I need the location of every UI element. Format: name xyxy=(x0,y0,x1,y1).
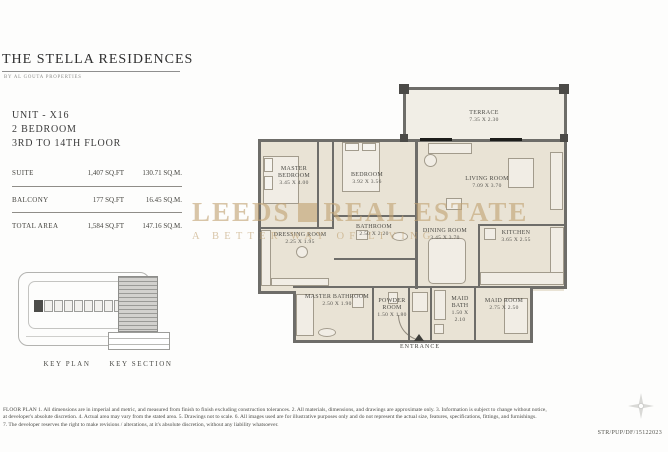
furniture-sink xyxy=(318,328,336,337)
key-plan-label: KEY PLAN xyxy=(26,360,108,368)
sliding-door xyxy=(420,138,452,141)
wall xyxy=(293,291,296,343)
watermark-line1: LEEDS REAL ESTATE xyxy=(192,197,528,228)
furniture-kitchen-counter xyxy=(480,272,564,285)
area-sqm: 147.16 SQ.M. xyxy=(124,222,182,230)
podium-elevation xyxy=(108,332,170,350)
wall xyxy=(258,291,296,294)
furniture-kitchen-counter xyxy=(550,227,564,273)
wall xyxy=(474,288,476,341)
area-sqm: 130.71 SQ.M. xyxy=(124,169,182,177)
unit-strip xyxy=(34,300,123,312)
furniture-armchair xyxy=(424,154,437,167)
furniture-bathtub xyxy=(434,290,446,320)
unit-floors: 3RD TO 14TH FLOOR xyxy=(12,137,121,151)
key-section-label: KEY SECTION xyxy=(98,360,184,368)
unit-info: UNIT - X16 2 BEDROOM 3RD TO 14TH FLOOR xyxy=(12,109,121,151)
furniture-dining-table xyxy=(428,238,466,284)
table-row: SUITE 1,407 SQ.FT 130.71 SQ.M. xyxy=(12,160,182,186)
unit-number: UNIT - X16 xyxy=(12,109,121,123)
room-label-master-bedroom: MASTER BEDROOM3.45 X 4.00 xyxy=(271,166,317,187)
area-sqft: 1,407 SQ.FT xyxy=(74,169,124,177)
furniture-pillow xyxy=(345,143,359,151)
watermark: LEEDS REAL ESTATE A BETTER WAY OF LIVING xyxy=(192,197,528,242)
furniture-sofa xyxy=(550,152,563,210)
room-label-living-room: LIVING ROOM7.09 X 3.70 xyxy=(452,176,522,190)
room-label-bedroom: BEDROOM3.92 X 3.56 xyxy=(338,172,396,186)
wall xyxy=(293,286,532,288)
wall xyxy=(372,288,374,341)
area-sqft: 177 SQ.FT xyxy=(74,196,124,204)
wall xyxy=(564,87,567,141)
wall xyxy=(408,288,410,341)
room-label-maid-bath: MAID BATH1.50 X 2.10 xyxy=(446,296,474,324)
road-line xyxy=(26,336,118,337)
area-row-label: BALCONY xyxy=(12,196,74,204)
document-reference: STR/PUP/DF/15122023 xyxy=(598,430,662,436)
furniture-wardrobe xyxy=(271,278,329,286)
room-label-master-bathroom: MASTER BATHROOM2.50 X 1.90 xyxy=(304,294,370,308)
column-post xyxy=(399,84,409,94)
furniture-pillow xyxy=(362,143,376,151)
disclaimer-text: FLOOR PLAN 1. All dimensions are in impe… xyxy=(3,407,667,429)
wall xyxy=(530,286,567,289)
page-title: THE STELLA RESIDENCES xyxy=(2,52,184,68)
wall xyxy=(530,286,533,343)
wall xyxy=(564,139,567,289)
developer-subtitle: BY AL GOUTA PROPERTIES xyxy=(4,75,82,80)
wall xyxy=(334,258,417,260)
entrance-arrow-icon xyxy=(414,334,424,341)
furniture-sofa xyxy=(428,143,472,154)
table-row: BALCONY 177 SQ.FT 16.45 SQ.M. xyxy=(12,186,182,212)
wall xyxy=(293,340,533,343)
wall xyxy=(403,87,406,141)
furniture-washer xyxy=(412,292,428,312)
room-label-maid-room: MAID ROOM2.75 X 2.50 xyxy=(478,298,530,312)
area-sqm: 16.45 SQ.M. xyxy=(124,196,182,204)
unit-type: 2 BEDROOM xyxy=(12,123,121,137)
area-row-label: TOTAL AREA xyxy=(12,222,74,230)
watermark-line2: A BETTER WAY OF LIVING xyxy=(192,231,528,242)
watermark-logo-icon xyxy=(298,203,317,222)
title-divider xyxy=(2,71,180,72)
furniture-toilet xyxy=(434,324,444,334)
room-label-powder-room: POWDER ROOM1.50 X 1.80 xyxy=(376,298,408,319)
entrance-label: ENTRANCE xyxy=(388,344,452,350)
brochure-page: THE STELLA RESIDENCES BY AL GOUTA PROPER… xyxy=(0,0,668,452)
column-post xyxy=(559,84,569,94)
furniture-pouf xyxy=(296,246,308,258)
area-table: SUITE 1,407 SQ.FT 130.71 SQ.M. BALCONY 1… xyxy=(12,160,182,238)
area-row-label: SUITE xyxy=(12,169,74,177)
column-post xyxy=(560,134,568,142)
sliding-door xyxy=(490,138,522,141)
tower-elevation xyxy=(118,276,158,332)
room-label-terrace: TERRACE7.35 X 2.30 xyxy=(448,110,520,124)
unit-location-marker xyxy=(34,300,43,312)
wall xyxy=(403,87,567,90)
table-row: TOTAL AREA 1,584 SQ.FT 147.16 SQ.M. xyxy=(12,212,182,238)
wall xyxy=(430,288,432,341)
area-sqft: 1,584 SQ.FT xyxy=(74,222,124,230)
column-post xyxy=(400,134,408,142)
